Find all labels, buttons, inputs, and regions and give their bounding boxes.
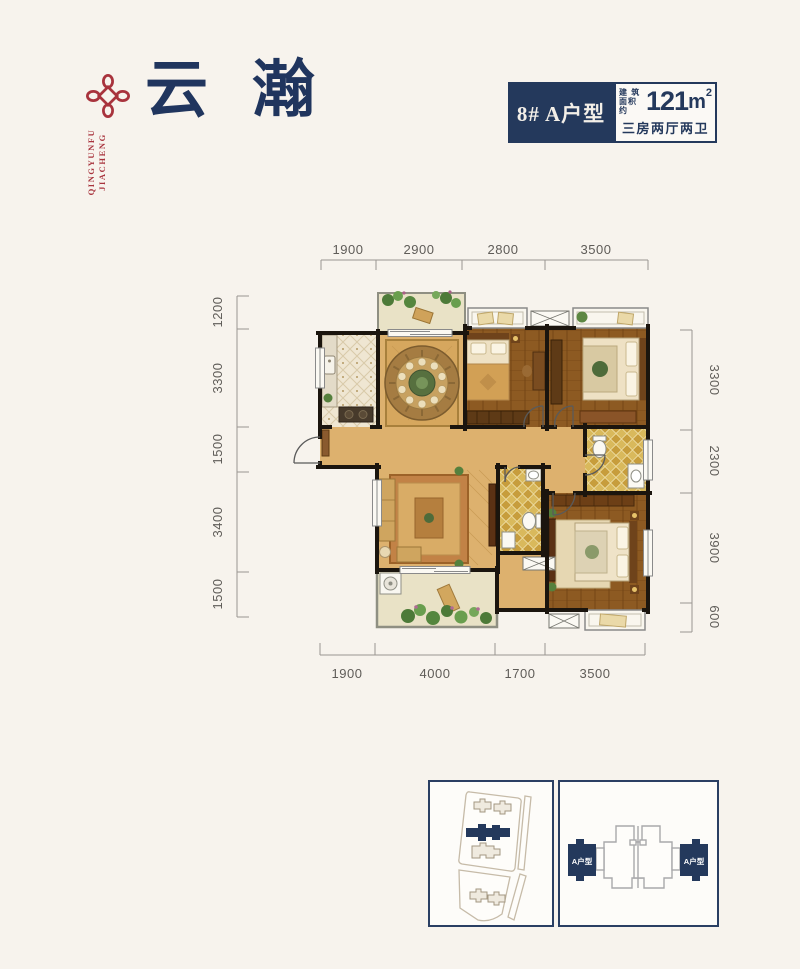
dim-left-1: 1200	[210, 297, 225, 328]
floorplan: 1900 2900 2800 3500 1900 4000 1700 3500 …	[0, 230, 800, 700]
chinese-knot-icon	[86, 74, 130, 118]
dim-left-3: 1500	[210, 434, 225, 465]
layout-label: 三房两厅两卫	[622, 118, 709, 137]
entry-cabinet	[322, 430, 329, 456]
dim-top-4: 3500	[581, 242, 612, 257]
site-plan-panel	[428, 780, 554, 927]
key-plate-diagram: A户型 A户型	[560, 782, 716, 924]
brand-name-line2: QINGYUNFU	[86, 116, 96, 208]
dim-right-3: 3900	[707, 533, 722, 564]
dim-top-3: 2800	[488, 242, 519, 257]
key-plate-right-label: A户型	[684, 856, 705, 866]
dim-right-2: 2300	[707, 446, 722, 477]
dim-right-1: 3300	[707, 365, 722, 396]
area-row: 建 筑 面积约 121 m 2	[619, 88, 712, 115]
corridor-master	[543, 427, 585, 493]
dim-bottom-3: 1700	[505, 666, 536, 681]
dim-bottom-4: 3500	[580, 666, 611, 681]
area-unit: m	[688, 92, 706, 112]
site-plan-map	[430, 782, 551, 924]
key-plate-left-label: A户型	[572, 856, 593, 866]
dim-top-1: 1900	[333, 242, 364, 257]
brand-name-line1: JIACHENG	[97, 116, 107, 208]
page-title: 云瀚	[145, 56, 359, 125]
unit-badge: 8# A户型	[508, 82, 614, 143]
dining-set	[385, 340, 459, 426]
area-value: 121	[646, 88, 688, 115]
dim-right-4: 600	[707, 605, 722, 628]
footer: A户型 A户型	[428, 780, 719, 927]
dim-top-2: 2900	[404, 242, 435, 257]
area-exponent: 2	[706, 88, 712, 99]
brand-name: QINGYUNFU JIACHENG	[86, 116, 107, 208]
dim-left-5: 1500	[210, 579, 225, 610]
dim-left-2: 3300	[210, 363, 225, 394]
key-plate-panel: A户型 A户型	[558, 780, 719, 927]
page: QINGYUNFU JIACHENG 云瀚 8# A户型 建 筑 面积约 121…	[0, 0, 800, 969]
dim-left-4: 3400	[210, 507, 225, 538]
dim-bottom-2: 4000	[420, 666, 451, 681]
area-prefix: 建 筑 面积约	[619, 88, 644, 115]
dim-bottom-1: 1900	[332, 666, 363, 681]
area-box: 建 筑 面积约 121 m 2 三房两厅两卫	[614, 82, 717, 143]
